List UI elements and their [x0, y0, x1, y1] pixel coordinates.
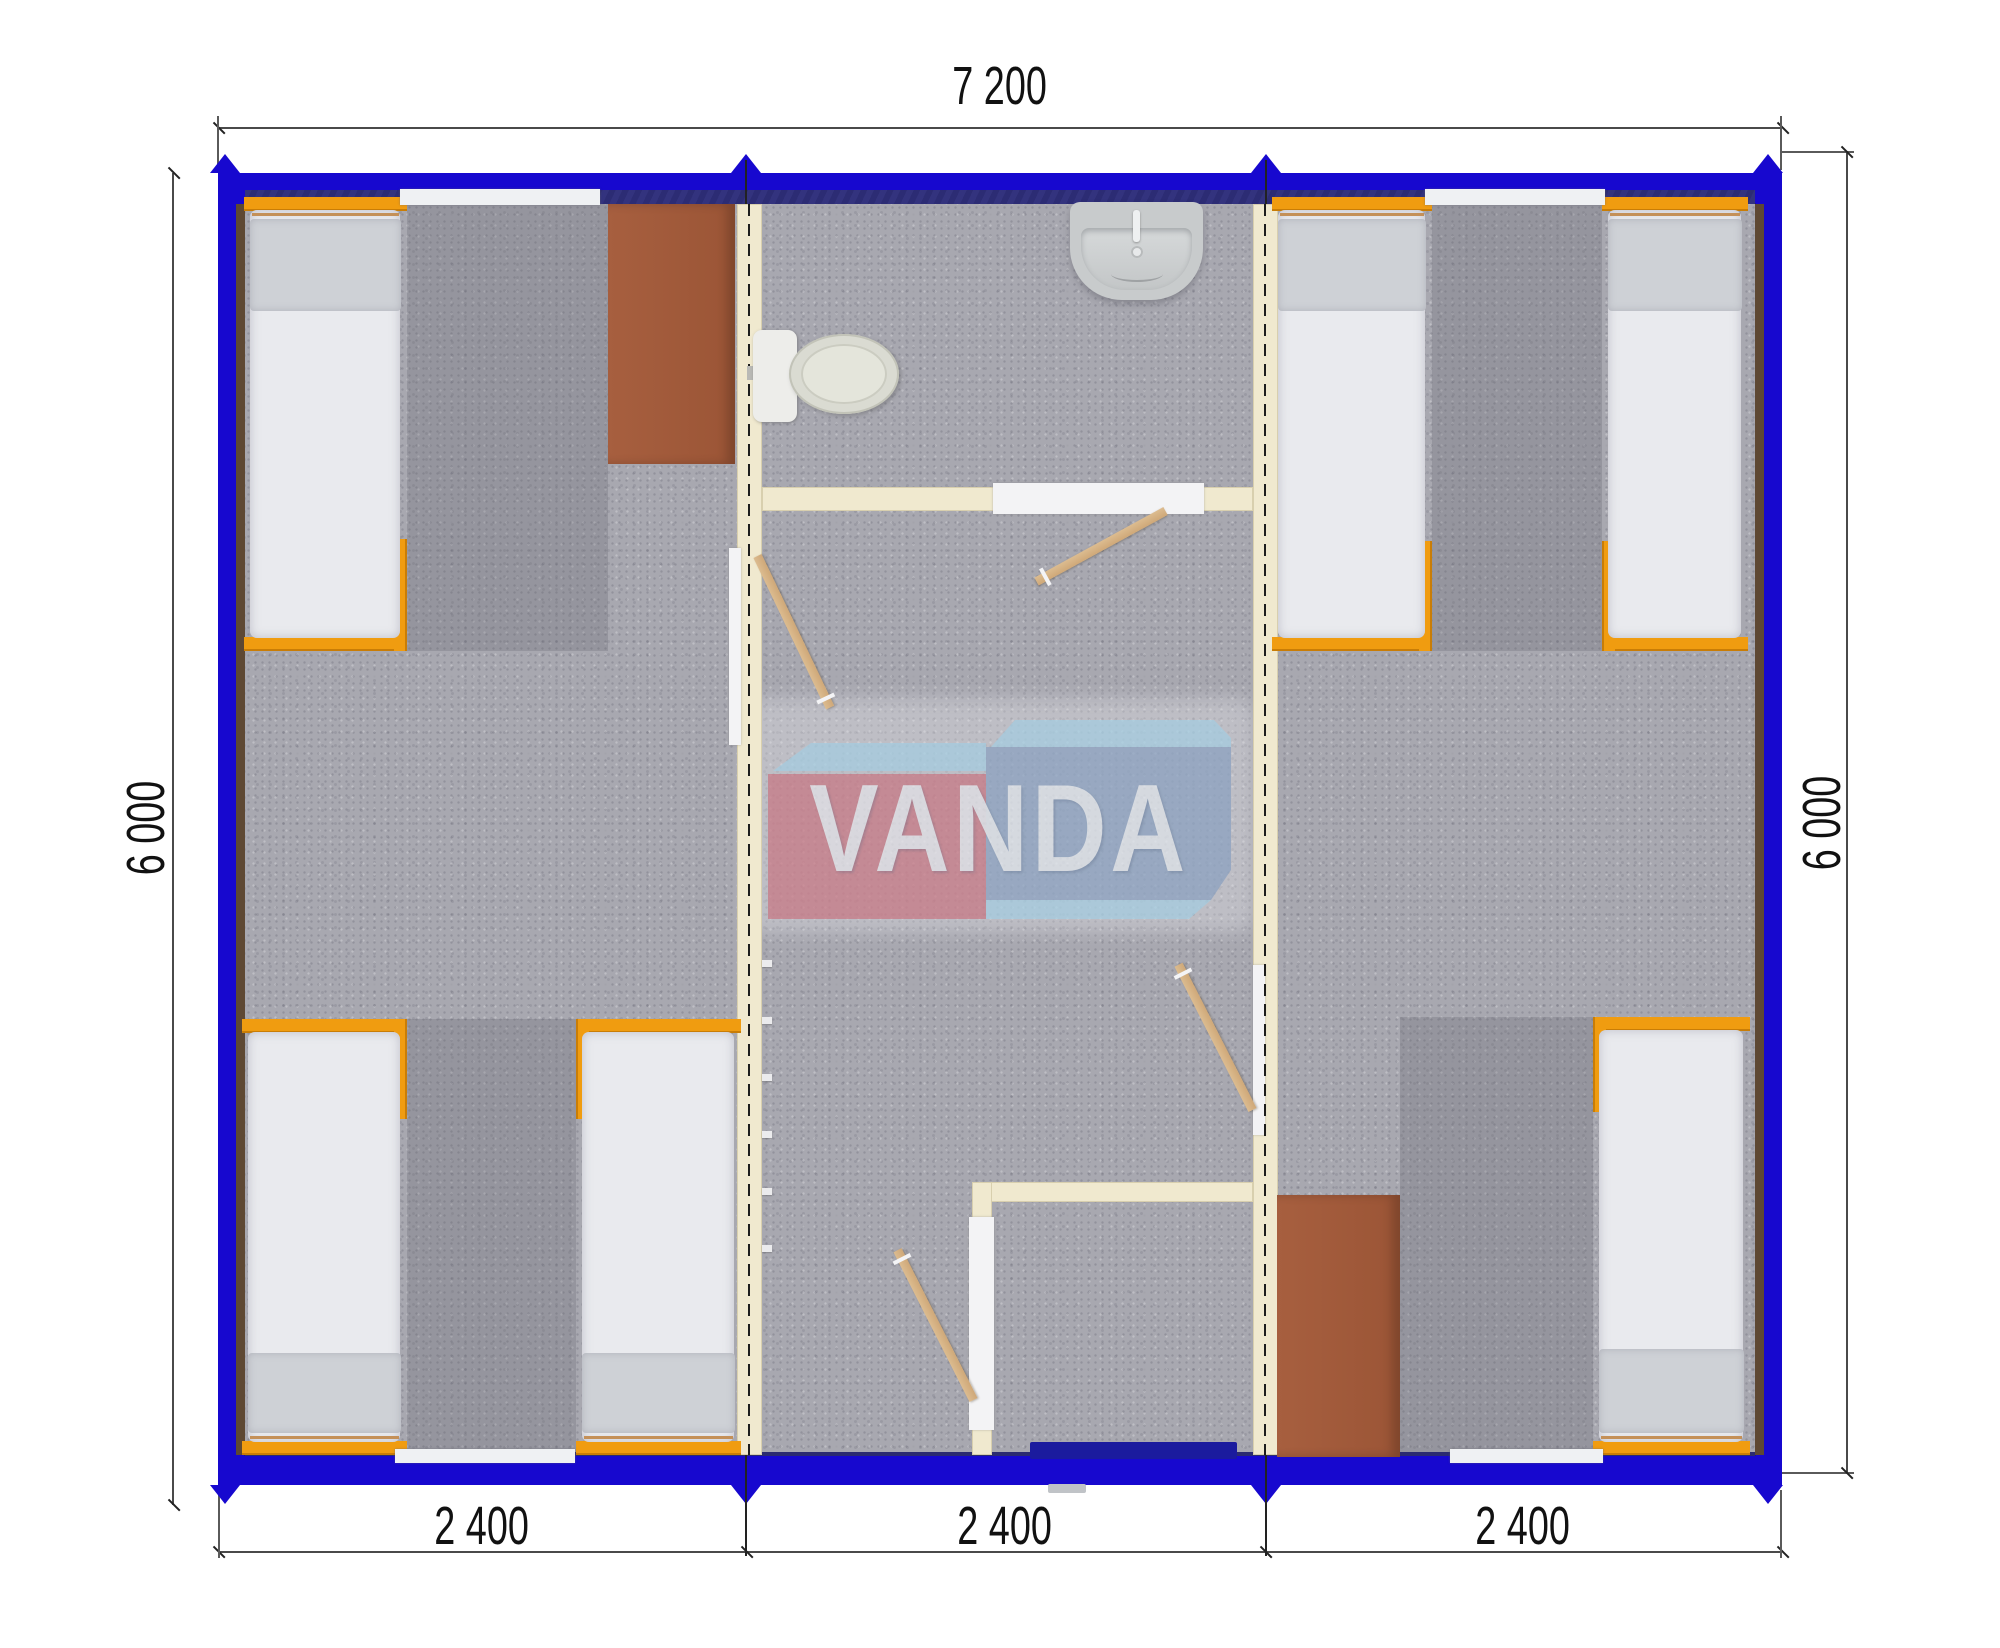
- module-joint-arrow-icon: [210, 154, 240, 173]
- bed-frame-bar: [244, 197, 407, 211]
- bed: [242, 1019, 407, 1455]
- sink-knob-icon: [1131, 246, 1143, 258]
- bed: [576, 1019, 741, 1455]
- wall-hook: [762, 1074, 772, 1081]
- module-joint-line: [745, 160, 747, 206]
- carpet-aisle: [1400, 1017, 1593, 1455]
- bed-frame-bar: [1593, 1017, 1750, 1031]
- bed-frame-bar: [242, 1019, 407, 1033]
- entry-door: [1030, 1442, 1237, 1459]
- window: [395, 1449, 575, 1463]
- carpet-aisle: [1432, 204, 1602, 651]
- carpet-aisle: [407, 1019, 576, 1455]
- module-joint-arrow-icon: [1753, 1485, 1783, 1504]
- wall-hook: [762, 1131, 772, 1138]
- bed-frame-bar: [1272, 197, 1432, 211]
- wall-hook: [762, 960, 772, 967]
- bed-pillow: [1278, 219, 1426, 311]
- bed-pillow: [1608, 219, 1742, 311]
- bed-frame-bar: [1602, 197, 1748, 211]
- bed: [244, 197, 407, 651]
- vanda-watermark-logo: VANDA: [758, 712, 1240, 930]
- entry-step: [1048, 1484, 1086, 1493]
- window: [400, 189, 600, 205]
- module-joint-line: [745, 1455, 747, 1556]
- bed-headboard-line: [250, 1436, 399, 1439]
- toilet-icon: [789, 334, 899, 414]
- dimension-extension: [1782, 1472, 1854, 1474]
- vestibule-wall-horizontal: [972, 1182, 1253, 1202]
- bed-frame-bar: [1272, 637, 1432, 651]
- bed-frame-bar: [242, 1441, 407, 1455]
- window: [1425, 189, 1605, 205]
- toilet-seat-icon: [801, 344, 887, 404]
- bed-frame-bar: [1602, 637, 1748, 651]
- door-opening-bathroom: [993, 483, 1204, 514]
- door-opening-left-partition: [729, 548, 741, 745]
- module-joint-arrow-icon: [1753, 154, 1783, 173]
- bed-headboard-line: [1610, 213, 1740, 216]
- bed-frame-bar: [1593, 1441, 1750, 1455]
- bed-frame-bar: [576, 1441, 741, 1455]
- dimension-label-bottom-2: 2 400: [885, 1500, 1125, 1552]
- bed-pillow: [248, 1353, 401, 1433]
- dimension-label-bottom-1: 2 400: [362, 1500, 602, 1552]
- sink-icon: [1070, 202, 1203, 300]
- bed: [1593, 1017, 1750, 1455]
- bed-pillow: [582, 1353, 735, 1433]
- module-joint-arrow-icon: [210, 1485, 240, 1504]
- dimension-label-right: 6 000: [1791, 755, 1853, 890]
- bed: [1272, 197, 1432, 651]
- bed-frame-bar: [244, 637, 407, 651]
- floorplan-canvas: 7 200 6 000 6 000 2 400 2 400 2 400: [0, 0, 2000, 1648]
- module-joint-line: [1265, 160, 1267, 206]
- dimension-label-bottom-3: 2 400: [1403, 1500, 1643, 1552]
- bed-headboard-line: [1601, 1436, 1742, 1439]
- dimension-tick: [167, 1499, 180, 1512]
- wall-hook: [762, 1188, 772, 1195]
- carpet-aisle: [407, 204, 608, 651]
- bed-headboard-line: [1280, 213, 1424, 216]
- sink-faucet-icon: [1133, 210, 1140, 242]
- bed-frame-bar: [576, 1019, 741, 1033]
- dimension-label-top: 7 200: [880, 58, 1120, 114]
- module-joint-line: [1265, 1455, 1267, 1556]
- bed-headboard-line: [584, 1436, 733, 1439]
- wall-hook: [762, 1245, 772, 1252]
- bed-pillow: [1599, 1349, 1744, 1433]
- bed: [1602, 197, 1748, 651]
- bed-headboard-line: [252, 213, 399, 216]
- dimension-line-top: [218, 127, 1782, 129]
- wardrobe: [1277, 1195, 1400, 1457]
- partition-centerline: [748, 204, 750, 1455]
- wardrobe: [608, 204, 735, 464]
- partition-centerline: [1264, 204, 1266, 1455]
- dimension-tick: [167, 167, 180, 180]
- dimension-extension: [1782, 151, 1854, 153]
- sink-drain-line: [1111, 266, 1163, 282]
- logo-wordmark: VANDA: [797, 758, 1202, 900]
- wall-inner-shadow-right: [1755, 204, 1764, 1455]
- wall-hook: [762, 1017, 772, 1024]
- window: [1450, 1449, 1603, 1463]
- dimension-label-left: 6 000: [115, 760, 177, 895]
- dimension-line-left: [172, 173, 174, 1505]
- bed-pillow: [250, 219, 401, 311]
- dimension-line-right: [1846, 152, 1848, 1473]
